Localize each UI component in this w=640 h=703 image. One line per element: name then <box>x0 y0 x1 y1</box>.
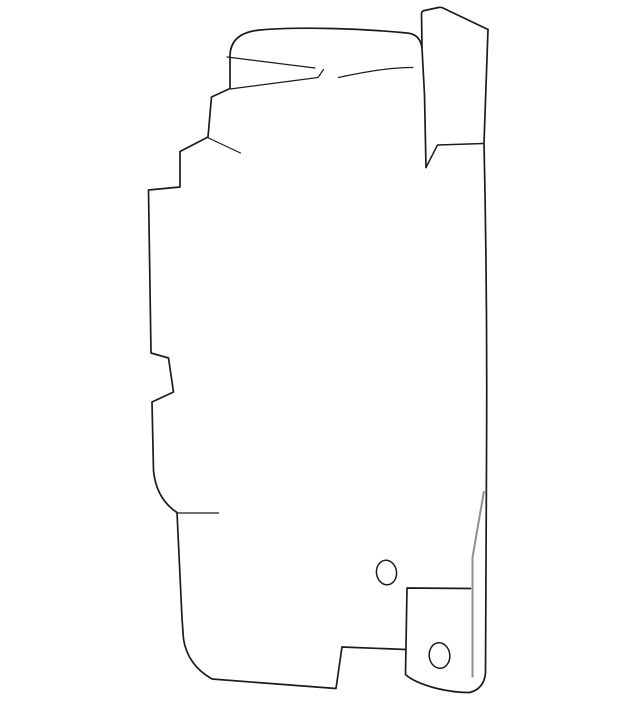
product-image <box>0 0 640 703</box>
crease-left-step <box>209 138 241 153</box>
mounting-bracket-outline <box>406 588 471 693</box>
crease-top-mid <box>230 70 324 90</box>
top-tab-outline <box>422 7 489 47</box>
crease-top-right <box>339 67 414 77</box>
part-line-art <box>0 0 640 703</box>
lower-hole <box>428 642 451 670</box>
panel-outline <box>149 28 427 688</box>
upper-hole <box>375 559 398 586</box>
flap-notch-line <box>426 144 484 168</box>
crease-top-left <box>227 57 315 68</box>
flange-fold-line <box>473 491 485 678</box>
